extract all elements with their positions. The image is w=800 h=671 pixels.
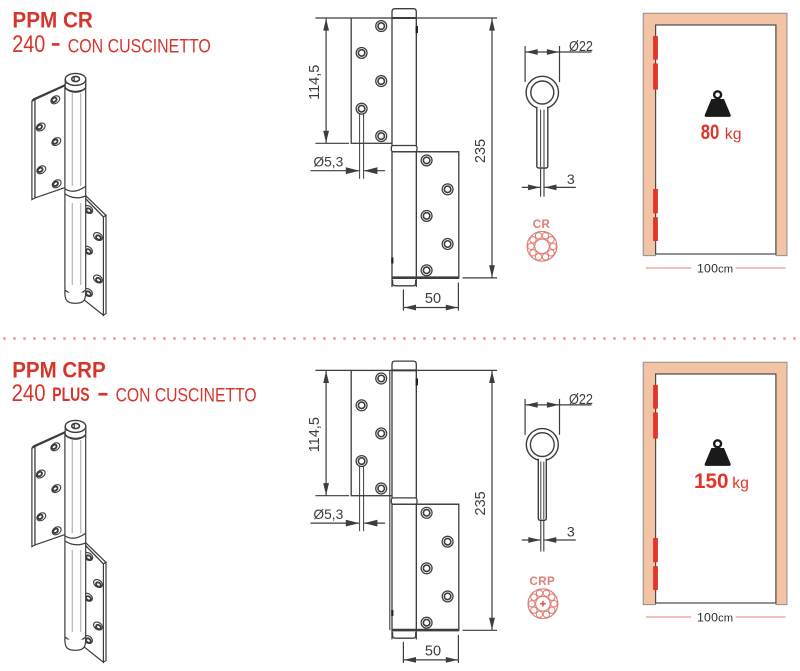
svg-text:kg: kg: [732, 475, 749, 492]
svg-text:100cm: 100cm: [697, 610, 733, 624]
svg-text:80: 80: [701, 121, 720, 144]
svg-text:240: 240: [12, 31, 45, 58]
svg-text:240: 240: [12, 380, 46, 407]
svg-text:114,5: 114,5: [307, 417, 323, 452]
svg-text:3: 3: [567, 172, 575, 188]
svg-text:CRP: CRP: [530, 576, 555, 588]
svg-text:CON CUSCINETTO: CON CUSCINETTO: [116, 384, 257, 406]
svg-text:114,5: 114,5: [307, 65, 323, 100]
svg-text:PPM CR: PPM CR: [12, 7, 93, 32]
svg-text:Ø5,3: Ø5,3: [313, 507, 343, 522]
svg-text:3: 3: [567, 525, 575, 541]
svg-text:Ø22: Ø22: [569, 391, 593, 408]
svg-text:CR: CR: [533, 219, 551, 231]
svg-text:Ø5,3: Ø5,3: [313, 155, 343, 170]
svg-text:Ø22: Ø22: [569, 38, 593, 55]
svg-text:100cm: 100cm: [697, 261, 733, 275]
svg-text:235: 235: [473, 139, 489, 163]
svg-text:235: 235: [473, 491, 489, 515]
svg-text:kg: kg: [725, 126, 742, 143]
svg-text:50: 50: [425, 643, 441, 659]
svg-text:PPM CRP: PPM CRP: [12, 358, 106, 383]
svg-text:50: 50: [425, 291, 441, 307]
svg-text:PLUS: PLUS: [52, 385, 89, 406]
svg-text:CON CUSCINETTO: CON CUSCINETTO: [68, 35, 211, 57]
svg-text:150: 150: [694, 470, 729, 493]
